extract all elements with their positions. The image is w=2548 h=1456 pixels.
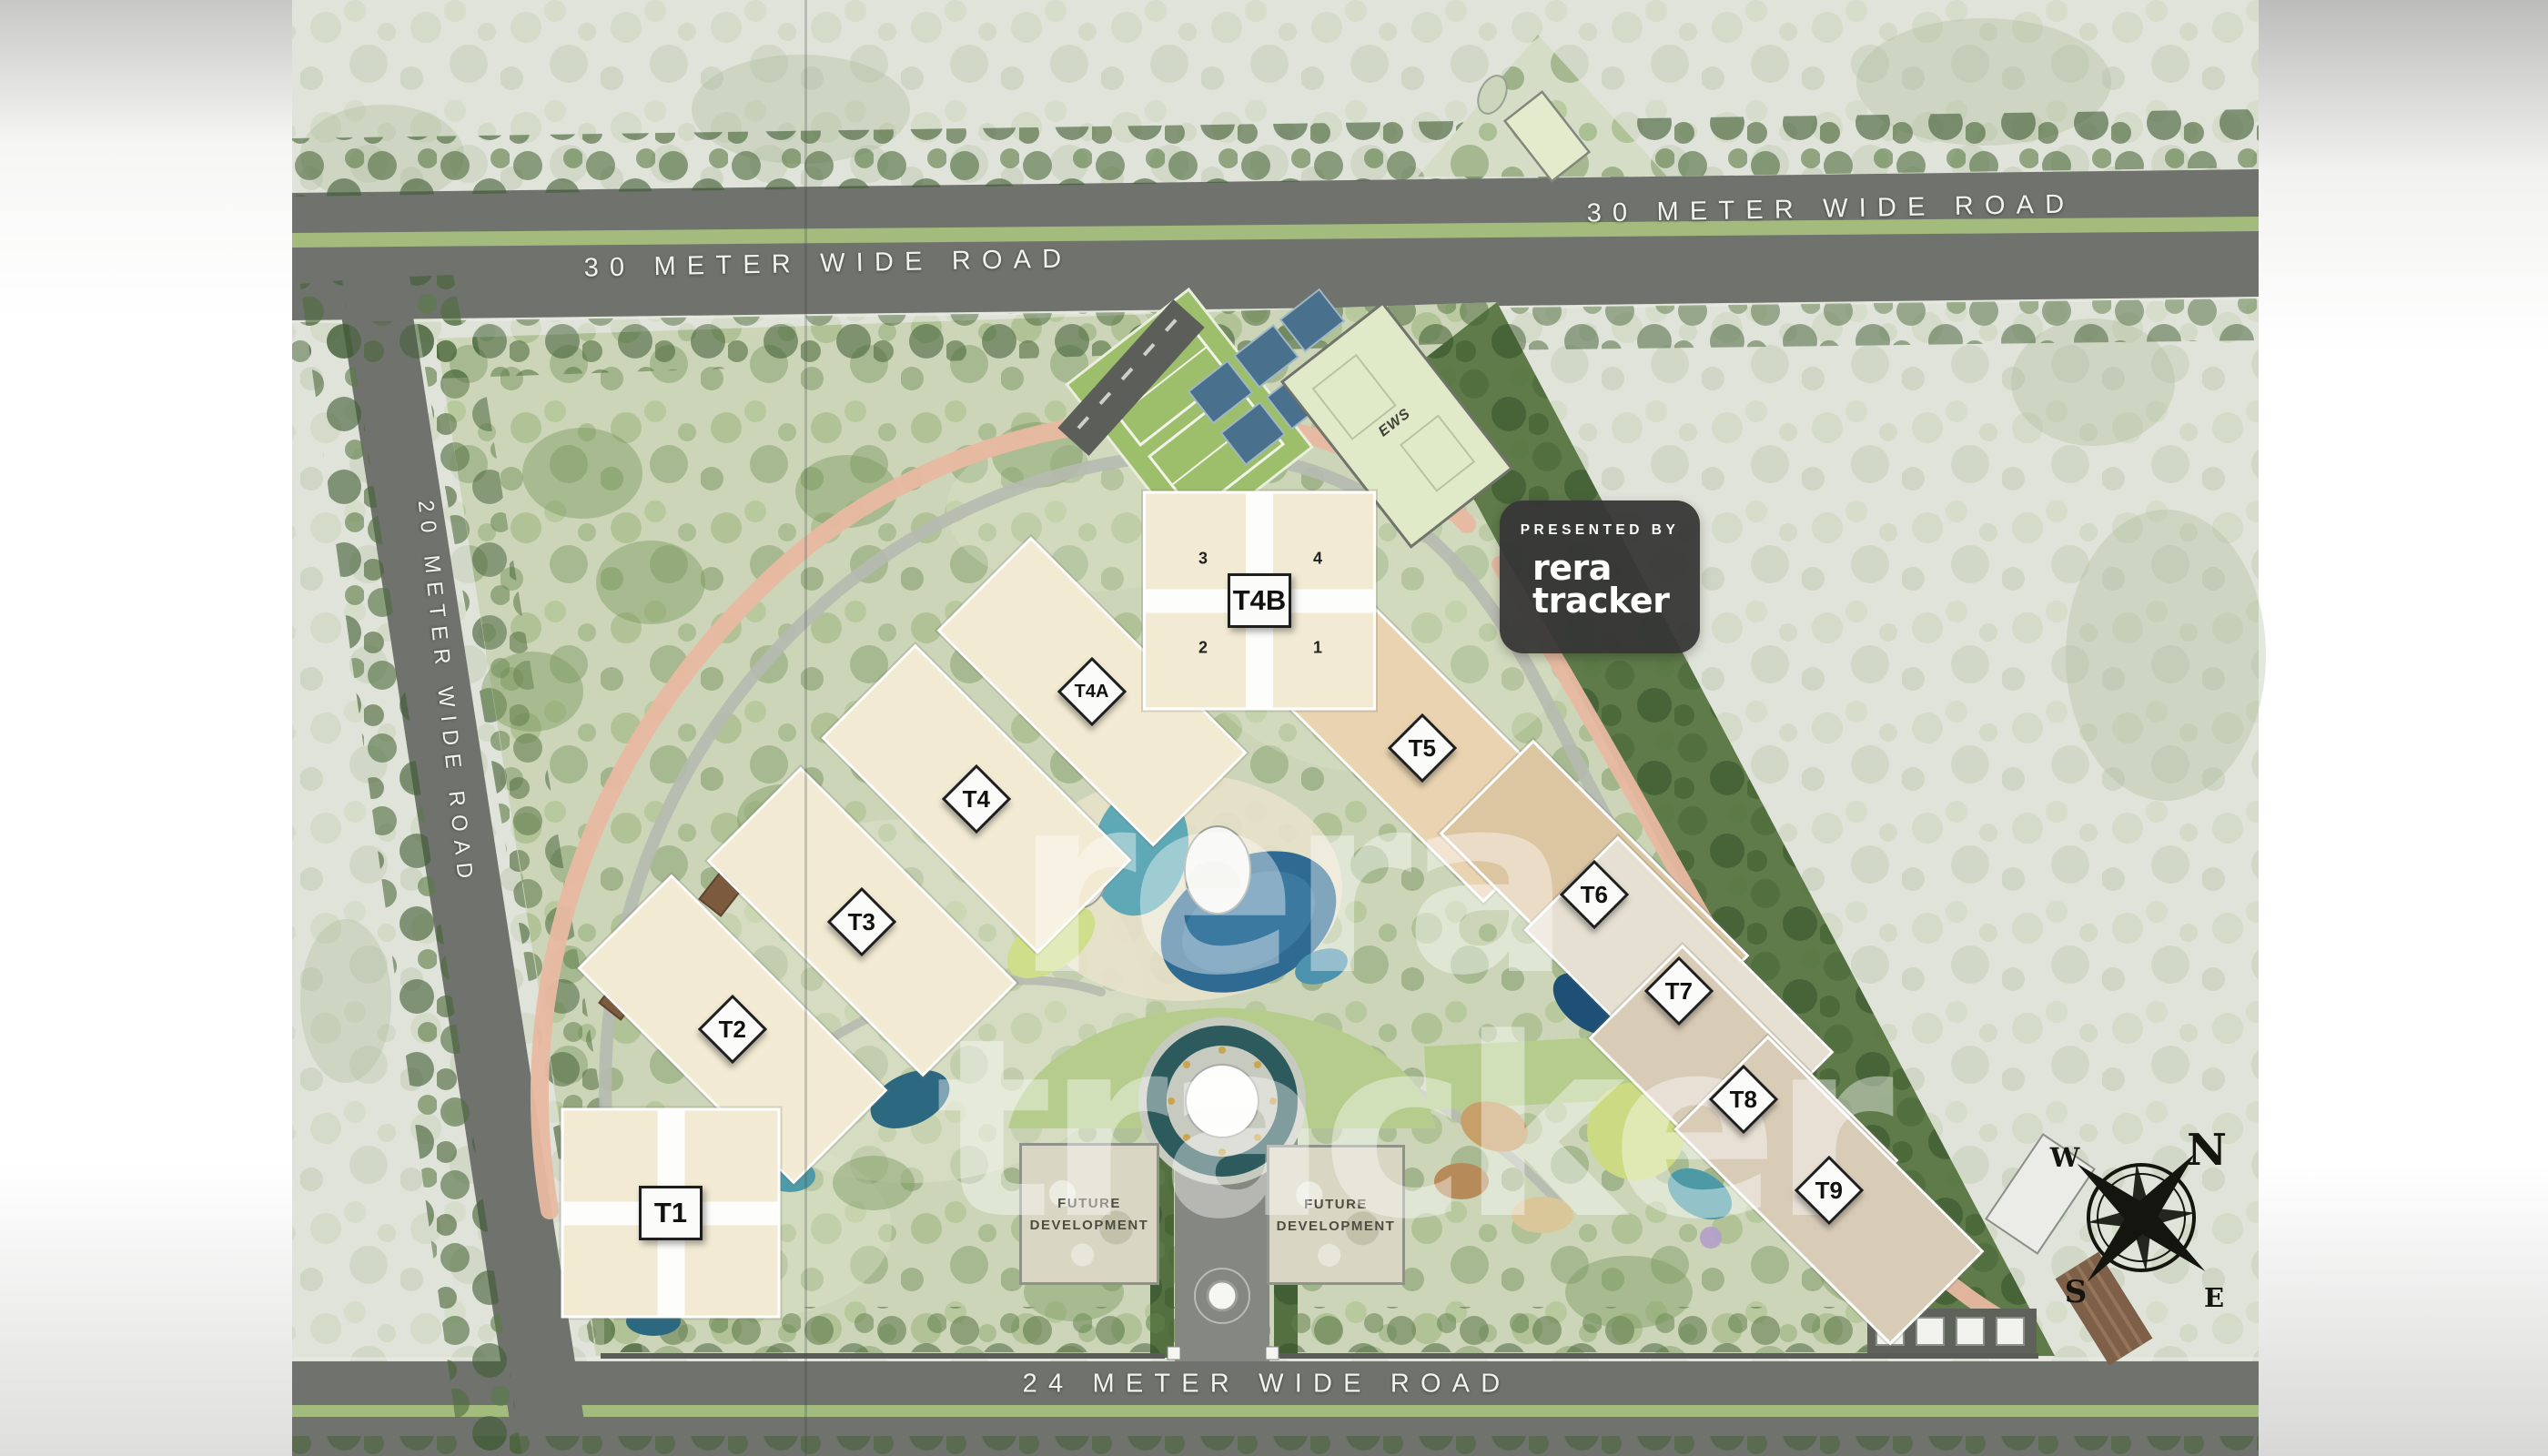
compass-east-label: E	[2204, 1282, 2224, 1313]
t4b-wing-number: 3	[1198, 550, 1208, 569]
watermark-line1: rera	[1015, 763, 1564, 1010]
tower-label-t4b: T4B	[1228, 573, 1291, 628]
brand-line1: rera	[1532, 551, 1700, 584]
entry-fountain	[1208, 1281, 1237, 1310]
t4b-wing-number: 4	[1313, 550, 1322, 569]
compass-south-label: S	[2065, 1274, 2088, 1310]
t4b-wing-number: 2	[1198, 639, 1208, 658]
rera-tracker-badge: PRESENTED BY rera tracker	[1500, 500, 1700, 653]
compass-west-label: W	[2050, 1142, 2080, 1173]
brand-logo-text: rera tracker	[1500, 551, 1700, 617]
compass-north-label: N	[2187, 1125, 2227, 1176]
presented-by-text: PRESENTED BY	[1500, 522, 1700, 539]
tower-label-t1: T1	[639, 1186, 703, 1240]
site-plan-image: rera tracker 3 4 2 1 FUTURE DEVELOPMENT …	[0, 0, 2548, 1456]
road-label-24m: 24 METER WIDE ROAD	[1023, 1370, 1512, 1400]
brand-line2: tracker	[1532, 584, 1700, 617]
print-crease	[804, 0, 807, 1456]
t4b-wing-number: 1	[1313, 639, 1322, 658]
gate-post	[1266, 1347, 1279, 1360]
gate-post	[1168, 1347, 1180, 1360]
